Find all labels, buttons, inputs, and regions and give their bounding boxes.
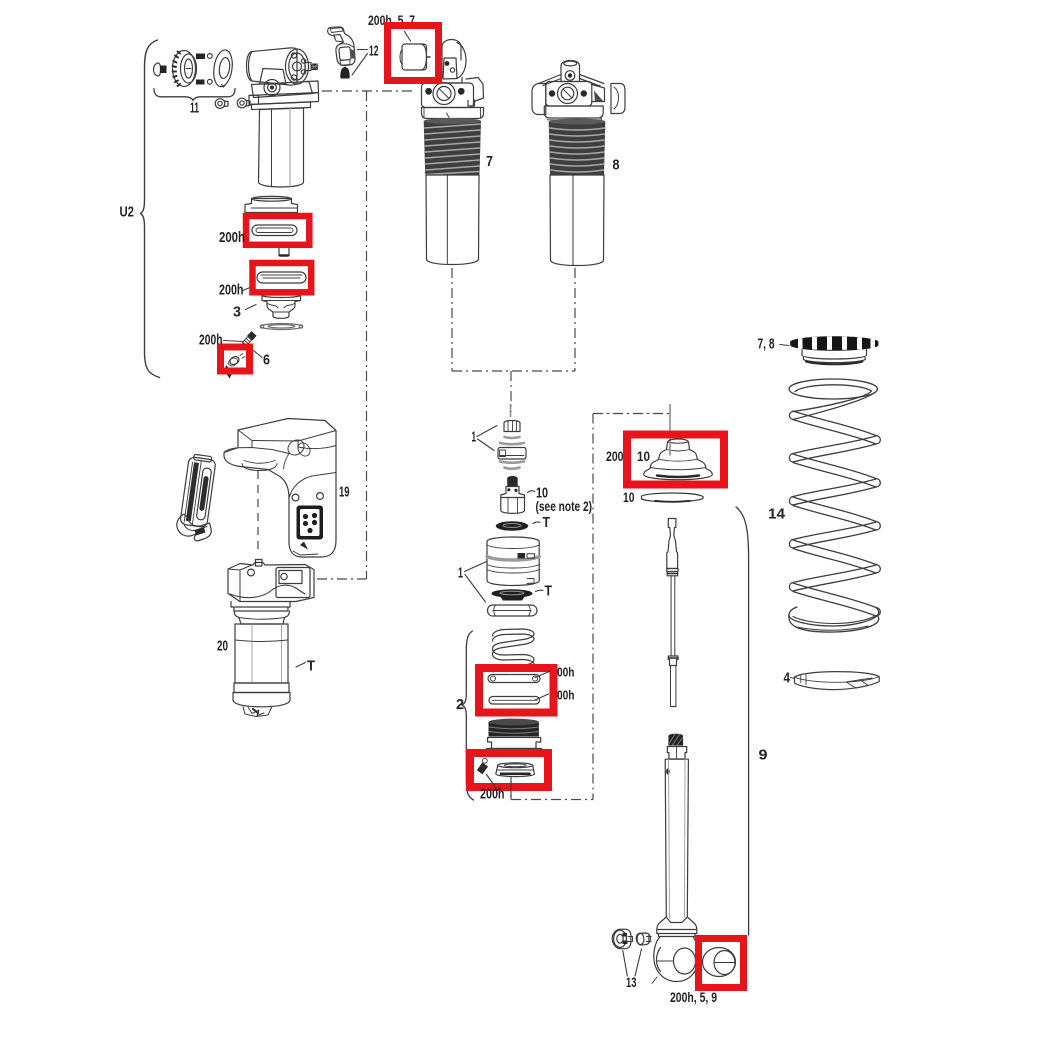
svg-text:2: 2 bbox=[456, 696, 464, 713]
svg-text:200h, 5, 9: 200h, 5, 9 bbox=[670, 990, 717, 1005]
svg-text:8: 8 bbox=[613, 157, 620, 174]
svg-text:12: 12 bbox=[369, 43, 379, 60]
svg-text:7, 8: 7, 8 bbox=[758, 336, 775, 353]
svg-text:19: 19 bbox=[339, 484, 350, 501]
svg-text:20: 20 bbox=[217, 638, 228, 655]
svg-text:4: 4 bbox=[784, 670, 791, 687]
svg-text:U2: U2 bbox=[120, 204, 135, 221]
svg-text:00h: 00h bbox=[557, 666, 575, 680]
svg-text:10: 10 bbox=[623, 490, 635, 505]
svg-text:(see note 2): (see note 2) bbox=[536, 499, 593, 514]
svg-text:14: 14 bbox=[768, 506, 786, 523]
svg-text:T: T bbox=[543, 514, 551, 531]
svg-text:200: 200 bbox=[606, 449, 624, 464]
svg-text:3: 3 bbox=[233, 304, 241, 321]
svg-text:7: 7 bbox=[486, 153, 493, 170]
svg-text:200h: 200h bbox=[219, 229, 245, 246]
svg-text:T: T bbox=[545, 583, 553, 600]
svg-text:11: 11 bbox=[190, 100, 199, 117]
svg-text:1: 1 bbox=[472, 429, 477, 446]
svg-text:200h: 200h bbox=[480, 786, 505, 803]
svg-text:200h: 200h bbox=[199, 332, 223, 349]
svg-text:10: 10 bbox=[637, 449, 650, 464]
svg-text:13: 13 bbox=[626, 975, 637, 990]
svg-text:6: 6 bbox=[263, 352, 270, 369]
svg-text:T: T bbox=[307, 658, 315, 675]
svg-text:9: 9 bbox=[759, 747, 768, 764]
svg-text:200h: 200h bbox=[219, 282, 244, 299]
svg-text:1: 1 bbox=[458, 565, 463, 582]
svg-text:00h: 00h bbox=[557, 689, 575, 703]
